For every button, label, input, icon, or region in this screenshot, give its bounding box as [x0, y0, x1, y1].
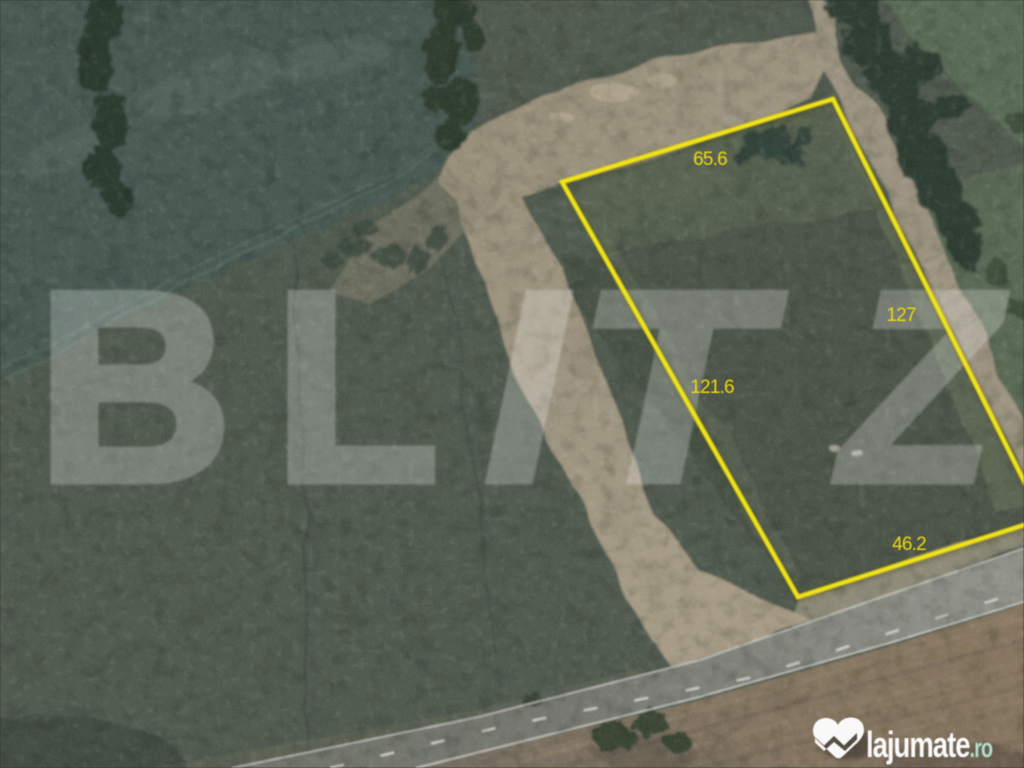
- svg-text:121.6: 121.6: [690, 377, 734, 398]
- svg-text:65.6: 65.6: [693, 149, 727, 170]
- svg-text:B: B: [37, 237, 232, 538]
- svg-text:127: 127: [886, 305, 916, 326]
- svg-text:L: L: [274, 237, 439, 538]
- svg-text:46.2: 46.2: [892, 534, 926, 555]
